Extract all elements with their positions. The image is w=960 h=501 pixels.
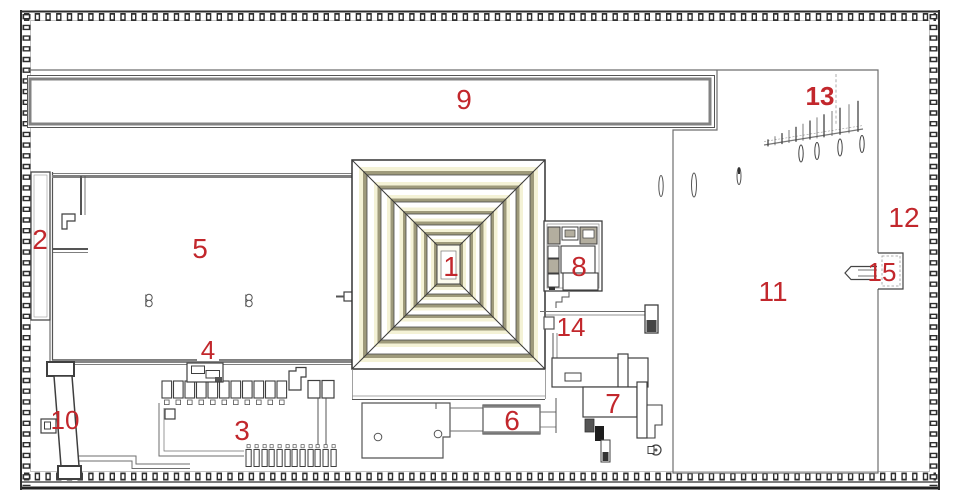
serdab-cell-n-inner: [565, 230, 575, 237]
chapel-row-south: [246, 450, 336, 467]
label-3: 3: [234, 415, 250, 446]
column-base-2: [434, 430, 442, 438]
label-10: 10: [51, 405, 80, 435]
serdab-cell-w2: [548, 259, 559, 273]
court-corridor-west-b: [164, 408, 244, 451]
south-corridor: [352, 369, 546, 400]
serdab-cell-w3: [548, 274, 559, 287]
label-8: 8: [571, 251, 587, 282]
chapel: [162, 381, 172, 398]
chapel-row-north: [162, 381, 287, 398]
label-14: 14: [557, 312, 586, 342]
site-plan: 1 2 3 4 5 6 7 8 9 10 11 12 13 14 15: [0, 0, 960, 501]
keyhole-mark: [336, 292, 353, 301]
serdab-cell-nw: [548, 227, 560, 244]
court-corridor-east: [318, 398, 326, 446]
chapel: [231, 381, 241, 398]
north-gallery: [28, 76, 715, 128]
column-base-1: [374, 433, 382, 441]
structure-4-dark-cell: [215, 377, 222, 382]
court-small-room: [165, 409, 175, 419]
complex7-dark-cell-b: [595, 426, 604, 441]
stair-mark: [556, 292, 569, 308]
chapel-row-north-marks: [165, 400, 285, 405]
chapel: [220, 381, 230, 398]
south-corridor-a: [79, 456, 190, 464]
entrance-hook-room: [62, 214, 75, 229]
ornament-dot: [655, 449, 658, 452]
serdab-cell-w1: [548, 246, 559, 258]
ruin-hanging-stones: [799, 136, 864, 163]
chapel: [208, 381, 218, 398]
ruin-baseline-sketch: [764, 126, 863, 142]
north-gallery-hall: [30, 79, 710, 124]
base-mark-1: [146, 294, 152, 306]
chapel: [185, 381, 195, 398]
serdab-dark-mark: [549, 287, 555, 290]
label-11: 11: [758, 276, 787, 307]
complex7-pillar: [618, 354, 628, 387]
court-marks: [659, 168, 741, 198]
label-9: 9: [456, 84, 472, 115]
ruin-baseline: [764, 129, 863, 145]
chapel: [254, 381, 264, 398]
complex7-south-cell-dark: [603, 452, 609, 461]
label-13: 13: [806, 81, 835, 111]
complex7-hook: [647, 405, 662, 438]
chapel: [243, 381, 253, 398]
ornament-square: [648, 447, 654, 454]
stepped-chapel: [289, 368, 306, 391]
chapel: [197, 381, 207, 398]
label-6: 6: [504, 405, 520, 436]
chapel: [266, 381, 276, 398]
chapel: [277, 381, 287, 398]
stela-mark-2: [692, 173, 697, 197]
label-15: 15: [868, 257, 897, 287]
serdab-cell-ne-inner: [583, 230, 594, 238]
label-4: 4: [201, 335, 215, 365]
site-plan-svg: 1 2 3 4 5 6 7 8 9 10 11 12 13 14 15: [0, 0, 960, 501]
label-12: 12: [888, 202, 919, 233]
chapel-row-south-marks: [247, 445, 335, 448]
base-mark-2: [246, 294, 252, 306]
west-strip-building: [31, 172, 50, 362]
structure-4-cell-b: [206, 371, 220, 379]
door-14-square: [544, 317, 554, 329]
complex7-dark-cell-a: [585, 419, 594, 432]
label-5: 5: [192, 233, 208, 264]
stela-mark-1: [659, 176, 663, 197]
south-tomb-cap-top: [47, 362, 74, 376]
complex7-cell: [565, 373, 581, 381]
label-2: 2: [32, 224, 48, 255]
tall-pillar-dark: [647, 320, 657, 332]
temple-t: [362, 398, 556, 458]
structure-4-cell-a: [192, 366, 205, 374]
south-corridor-b: [79, 461, 190, 469]
south-tomb-cap-bottom: [58, 466, 81, 479]
complex7-east-bar: [637, 382, 647, 438]
label-7: 7: [605, 388, 621, 419]
chapel-wide-1: [308, 381, 320, 399]
label-1: 1: [443, 251, 459, 282]
chapel: [174, 381, 184, 398]
chapel-wide-2: [322, 381, 334, 399]
